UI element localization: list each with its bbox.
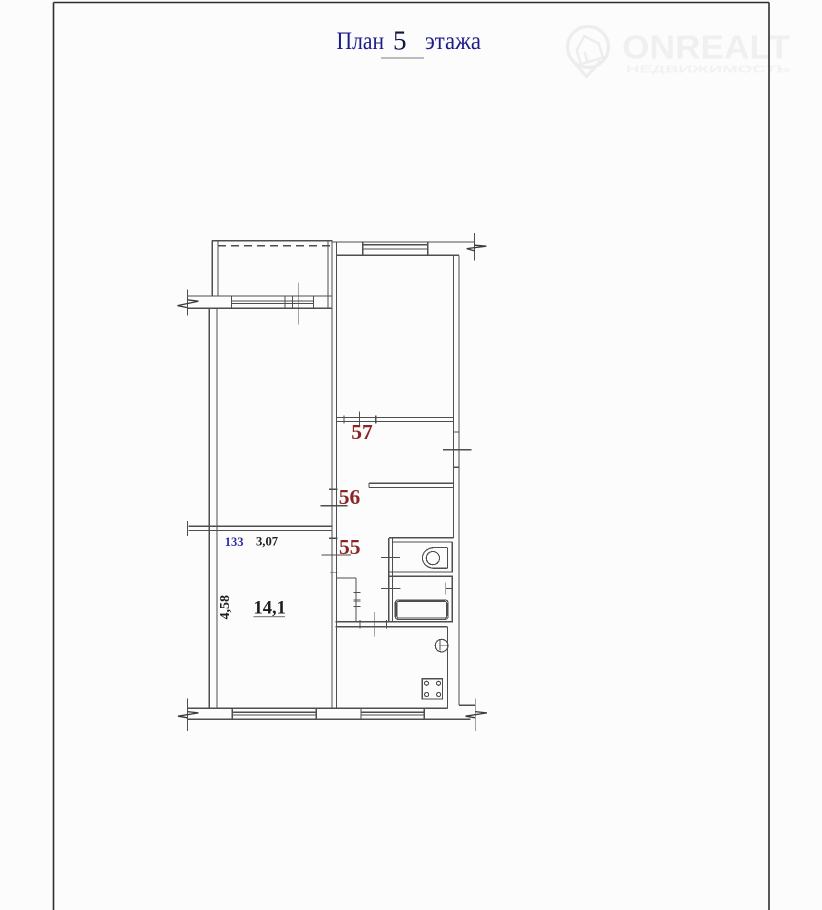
svg-text:5: 5	[393, 26, 407, 56]
svg-text:ONREALT: ONREALT	[622, 30, 791, 67]
svg-text:14,1: 14,1	[254, 599, 286, 619]
svg-text:133: 133	[225, 535, 244, 549]
svg-text:План: План	[337, 28, 385, 55]
svg-text:этажа: этажа	[425, 28, 481, 55]
svg-text:56: 56	[339, 485, 361, 509]
svg-text:57: 57	[351, 420, 373, 444]
svg-text:3,07: 3,07	[256, 535, 278, 549]
svg-text:НЕДВИЖИМОСТЬ: НЕДВИЖИМОСТЬ	[626, 64, 791, 76]
svg-text:4,58: 4,58	[218, 595, 233, 620]
svg-text:55: 55	[339, 535, 361, 559]
